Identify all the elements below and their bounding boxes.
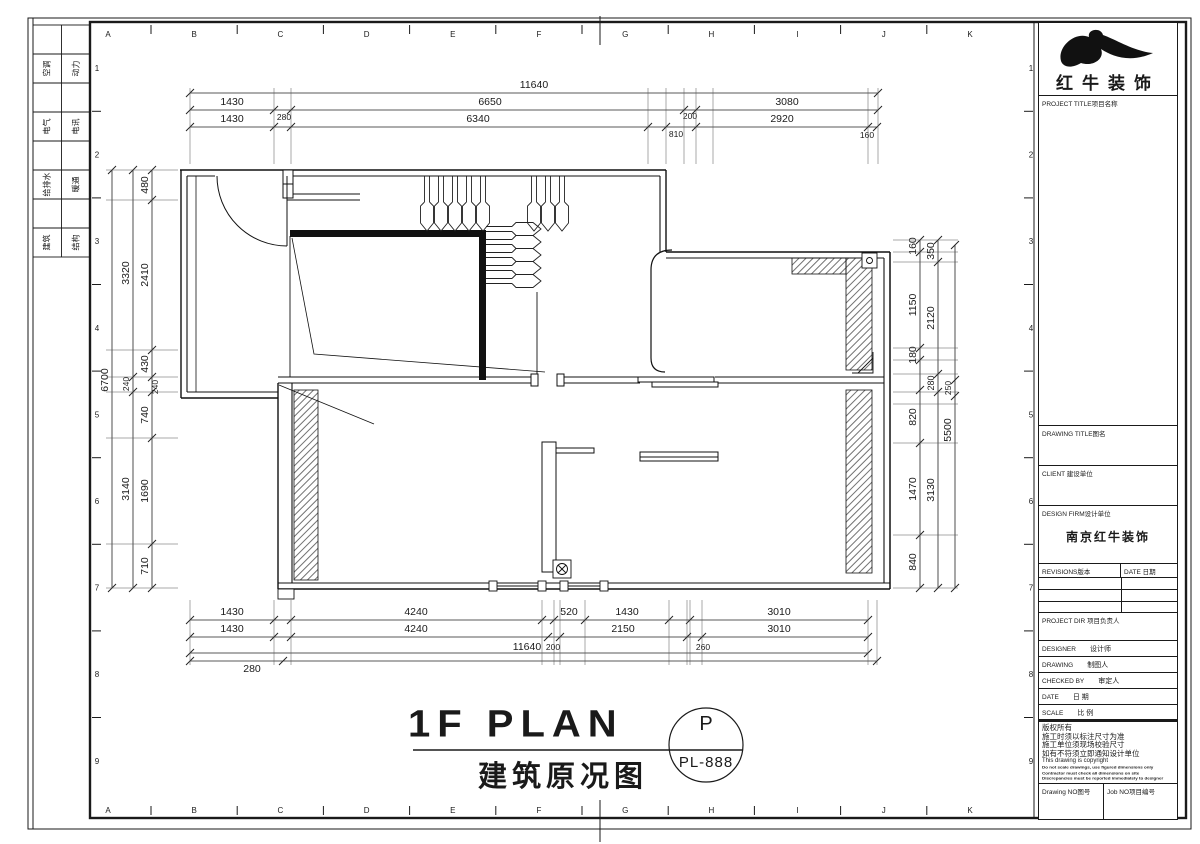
- svg-text:3320: 3320: [120, 261, 132, 285]
- signature-cell: 暖通: [62, 170, 90, 199]
- svg-text:280: 280: [277, 112, 291, 122]
- svg-text:2410: 2410: [139, 263, 151, 287]
- svg-text:1: 1: [95, 64, 100, 73]
- svg-text:2: 2: [1029, 151, 1034, 160]
- svg-text:7: 7: [95, 584, 100, 593]
- svg-text:9: 9: [1029, 757, 1034, 766]
- design-firm-label: DESIGN FIRM设计单位: [1042, 508, 1111, 518]
- company-logo-icon: [1053, 25, 1163, 71]
- project-title-box: PROJECT TITLE项目名称: [1039, 96, 1177, 426]
- svg-text:350: 350: [925, 242, 937, 260]
- svg-text:240: 240: [121, 377, 131, 391]
- svg-text:4240: 4240: [404, 623, 428, 635]
- svg-text:520: 520: [560, 606, 578, 618]
- svg-text:820: 820: [907, 408, 919, 426]
- client-label: CLIENT 建设单位: [1042, 468, 1093, 478]
- svg-text:9: 9: [95, 757, 100, 766]
- svg-text:A: A: [105, 806, 111, 815]
- svg-text:1430: 1430: [220, 623, 244, 635]
- svg-text:11640: 11640: [513, 641, 542, 653]
- svg-text:E: E: [450, 806, 455, 815]
- svg-text:3: 3: [95, 237, 100, 246]
- svg-text:6340: 6340: [466, 113, 490, 125]
- svg-text:J: J: [882, 30, 886, 39]
- svg-text:D: D: [364, 30, 370, 39]
- svg-text:2150: 2150: [611, 623, 635, 635]
- svg-text:8: 8: [95, 670, 100, 679]
- scale-row: SCALE比 例: [1039, 705, 1177, 720]
- svg-text:1430: 1430: [220, 113, 244, 125]
- svg-text:260: 260: [696, 642, 710, 652]
- drawing-title-label: DRAWING TITLE图名: [1042, 428, 1106, 438]
- stamp-number: PL-888: [669, 754, 743, 771]
- copyright-box: 版权所有施工时须以标注尺寸为准施工单位须现场校验尺寸如有不符须立即通知设计单位 …: [1039, 720, 1177, 784]
- svg-text:250: 250: [943, 381, 953, 395]
- svg-text:3010: 3010: [767, 606, 791, 618]
- project-director-box: PROJECT DIR 项目负责人: [1039, 613, 1177, 641]
- svg-text:430: 430: [139, 355, 151, 373]
- number-boxes: Drawing NO图号 Job NO项目编号: [1039, 783, 1177, 819]
- svg-text:2120: 2120: [925, 306, 937, 330]
- signature-cell: 空调: [33, 54, 61, 83]
- svg-text:6: 6: [1029, 497, 1034, 506]
- hatch-bands: [294, 258, 872, 580]
- svg-text:160: 160: [860, 130, 874, 140]
- svg-text:710: 710: [139, 557, 151, 575]
- svg-text:280: 280: [926, 375, 936, 390]
- svg-text:740: 740: [139, 406, 151, 424]
- svg-text:6: 6: [95, 497, 100, 506]
- svg-text:F: F: [537, 806, 542, 815]
- floor-drain-symbol: [553, 560, 571, 578]
- svg-text:G: G: [622, 806, 628, 815]
- svg-text:1: 1: [1029, 64, 1034, 73]
- svg-text:810: 810: [669, 129, 683, 139]
- svg-text:G: G: [622, 30, 628, 39]
- svg-text:11640: 11640: [520, 79, 549, 91]
- svg-text:5: 5: [1029, 410, 1034, 419]
- svg-text:180: 180: [907, 346, 919, 364]
- svg-text:D: D: [364, 806, 370, 815]
- copyright-en: This drawing is copyright: [1042, 758, 1177, 765]
- svg-text:C: C: [278, 806, 284, 815]
- svg-text:E: E: [450, 30, 455, 39]
- curved-wall: [651, 250, 672, 372]
- svg-text:5500: 5500: [942, 418, 954, 442]
- svg-text:K: K: [967, 30, 973, 39]
- svg-text:3130: 3130: [925, 478, 937, 502]
- svg-text:6700: 6700: [99, 368, 111, 392]
- plan-subtitle: 建筑原况图: [478, 753, 648, 795]
- signature-cell: 电讯: [62, 112, 90, 141]
- job-no-label: Job NO项目编号: [1107, 789, 1155, 796]
- svg-text:4240: 4240: [404, 606, 428, 618]
- svg-text:480: 480: [139, 176, 151, 194]
- svg-text:2: 2: [95, 151, 100, 160]
- svg-text:3080: 3080: [775, 96, 799, 108]
- date-row: DATE日 期: [1039, 689, 1177, 705]
- windows: [278, 581, 608, 599]
- svg-text:1430: 1430: [615, 606, 639, 618]
- svg-text:3010: 3010: [767, 623, 791, 635]
- svg-text:K: K: [967, 806, 973, 815]
- stamp-letter: P: [669, 713, 743, 736]
- corner-column-symbol: [862, 253, 877, 268]
- svg-text:5: 5: [95, 410, 100, 419]
- revision-date-label: DATE 日期: [1124, 566, 1156, 576]
- client-box: CLIENT 建设单位: [1039, 466, 1177, 506]
- svg-text:2920: 2920: [770, 113, 794, 125]
- revisions-box: REVISIONS版本 DATE 日期: [1039, 564, 1177, 613]
- svg-text:4: 4: [95, 324, 100, 333]
- svg-text:1470: 1470: [907, 477, 919, 501]
- company-name: 红牛装饰: [1039, 69, 1177, 94]
- svg-text:A: A: [105, 30, 111, 39]
- svg-text:8: 8: [1029, 670, 1034, 679]
- svg-text:H: H: [709, 30, 715, 39]
- svg-text:200: 200: [546, 642, 560, 652]
- svg-text:I: I: [796, 30, 798, 39]
- designer-row: DESIGNER设计师: [1039, 641, 1177, 657]
- svg-text:1430: 1430: [220, 606, 244, 618]
- signature-cell: 电气: [33, 112, 61, 141]
- revisions-label: REVISIONS版本: [1042, 566, 1090, 576]
- svg-text:1690: 1690: [139, 479, 151, 503]
- swing-door: [217, 176, 287, 246]
- svg-text:6650: 6650: [478, 96, 502, 108]
- checked-by-row: CHECKED BY审定人: [1039, 673, 1177, 689]
- svg-text:B: B: [192, 30, 197, 39]
- design-firm-box: DESIGN FIRM设计单位 南京红牛装饰: [1039, 506, 1177, 564]
- interior-fixtures: [542, 442, 718, 572]
- signature-cell: 建筑: [33, 228, 61, 257]
- svg-text:C: C: [278, 30, 284, 39]
- svg-text:I: I: [796, 806, 798, 815]
- svg-text:840: 840: [907, 553, 919, 571]
- svg-text:7: 7: [1029, 584, 1034, 593]
- plan-title: 1F PLAN: [408, 703, 624, 746]
- signature-cell: 结构: [62, 228, 90, 257]
- svg-text:B: B: [192, 806, 197, 815]
- svg-text:1430: 1430: [220, 96, 244, 108]
- title-block: 红牛装饰 PROJECT TITLE项目名称 DRAWING TITLE图名 C…: [1038, 22, 1178, 820]
- svg-text:F: F: [537, 30, 542, 39]
- svg-text:4: 4: [1029, 324, 1034, 333]
- signature-cell: 给排水: [33, 170, 61, 199]
- drawing-by-row: DRAWING制图人: [1039, 657, 1177, 673]
- project-title-label: PROJECT TITLE项目名称: [1042, 98, 1118, 108]
- project-director-label: PROJECT DIR 项目负责人: [1042, 615, 1120, 625]
- generated-annotations: AABBCCDDEEFFGGHHIIJJKK112233445566778899…: [92, 25, 1034, 815]
- svg-text:H: H: [709, 806, 715, 815]
- thick-walls: [290, 230, 486, 380]
- logo-section: 红牛装饰: [1039, 23, 1177, 96]
- svg-text:280: 280: [243, 663, 261, 675]
- svg-text:3: 3: [1029, 237, 1034, 246]
- svg-text:200: 200: [683, 111, 697, 121]
- svg-text:1150: 1150: [907, 294, 919, 317]
- svg-text:J: J: [882, 806, 886, 815]
- design-firm-value: 南京红牛装饰: [1039, 528, 1177, 545]
- drawing-no-label: Drawing NO图号: [1042, 789, 1090, 796]
- signature-cell: 动力: [62, 54, 90, 83]
- svg-text:3140: 3140: [120, 477, 132, 501]
- drawing-sheet: AABBCCDDEEFFGGHHIIJJKK112233445566778899…: [0, 0, 1200, 844]
- drawing-title-box: DRAWING TITLE图名: [1039, 426, 1177, 466]
